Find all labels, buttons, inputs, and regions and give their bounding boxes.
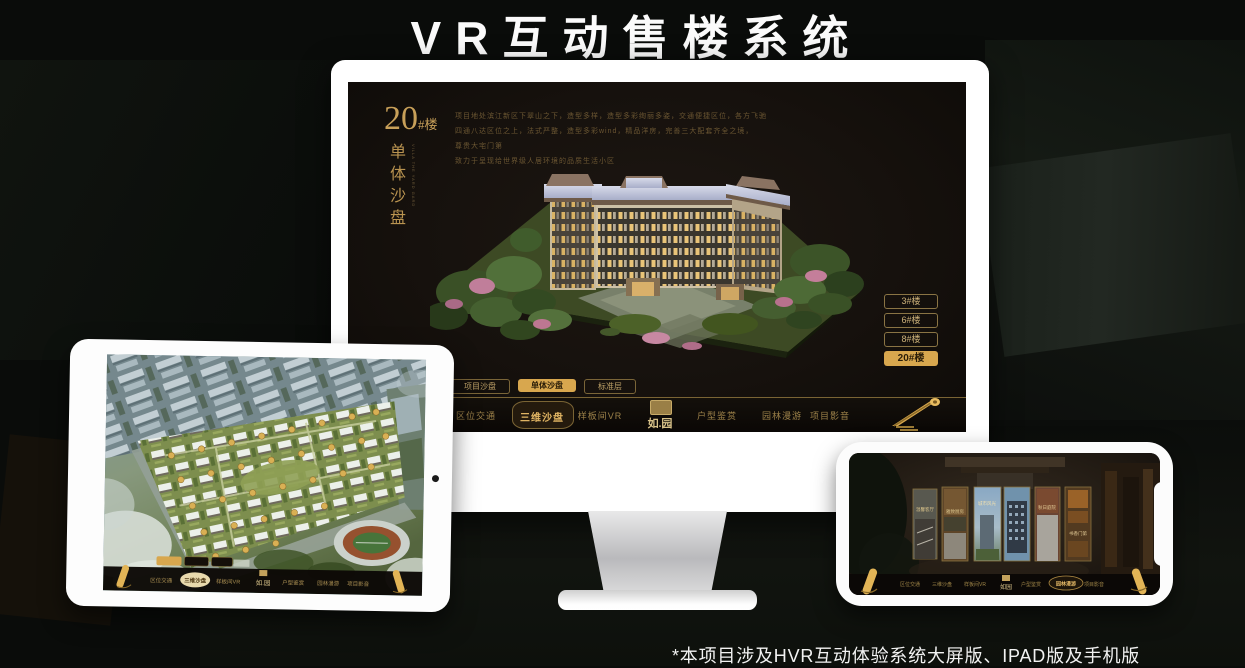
svg-text:项目影音: 项目影音 <box>1084 581 1104 588</box>
svg-text:区位交通: 区位交通 <box>900 581 920 588</box>
svg-text:园林漫游: 园林漫游 <box>1056 581 1076 588</box>
svg-text:样板间VR: 样板间VR <box>964 581 986 588</box>
svg-text:户型鉴赏: 户型鉴赏 <box>1021 581 1041 588</box>
svg-text:温馨客厅: 温馨客厅 <box>916 506 934 513</box>
svg-text:三维沙盘: 三维沙盘 <box>932 581 952 588</box>
svg-text:书香门第: 书香门第 <box>1069 530 1087 537</box>
svg-text:如园: 如园 <box>1000 583 1012 591</box>
svg-text:雅致厨房: 雅致厨房 <box>946 508 964 515</box>
svg-text:如.园: 如.园 <box>256 578 271 587</box>
svg-text:城市风光: 城市风光 <box>978 500 996 507</box>
svg-text:秋日庭院: 秋日庭院 <box>1038 504 1056 511</box>
